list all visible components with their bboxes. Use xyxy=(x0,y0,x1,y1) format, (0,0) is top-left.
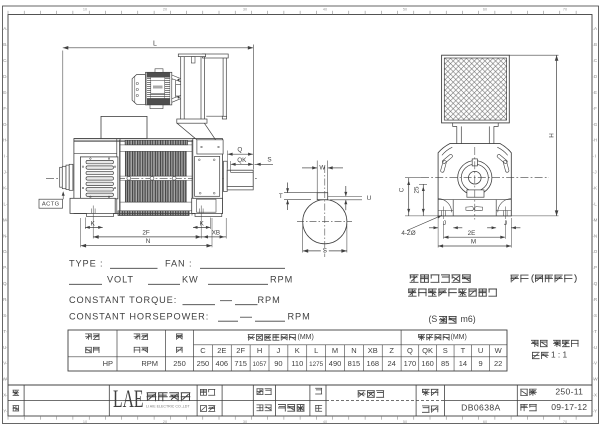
svg-text:L: L xyxy=(314,346,318,355)
svg-text:J: J xyxy=(594,170,596,175)
svg-text:168: 168 xyxy=(367,359,380,368)
svg-text:10: 10 xyxy=(83,8,87,12)
svg-text:RPM: RPM xyxy=(141,359,158,368)
svg-text:QK: QK xyxy=(237,157,247,164)
svg-text:TYPE :: TYPE : xyxy=(69,259,104,269)
svg-text:E: E xyxy=(3,90,6,95)
svg-text:F: F xyxy=(594,106,597,111)
svg-text:2F: 2F xyxy=(142,229,150,236)
svg-text:40: 40 xyxy=(323,8,327,12)
svg-text:X: X xyxy=(594,393,597,398)
svg-text:4-ZØ: 4-ZØ xyxy=(401,230,415,237)
svg-text:60: 60 xyxy=(483,8,487,12)
svg-text:B: B xyxy=(594,42,597,47)
svg-text:K: K xyxy=(295,346,300,355)
svg-text:O: O xyxy=(3,249,7,254)
svg-text:40: 40 xyxy=(323,420,327,424)
svg-text:LAE: LAE xyxy=(113,386,144,413)
svg-text:490: 490 xyxy=(329,359,342,368)
svg-text:250-11: 250-11 xyxy=(555,386,583,396)
svg-text:N: N xyxy=(351,346,356,355)
svg-text:M: M xyxy=(471,239,476,246)
svg-text:110: 110 xyxy=(291,359,303,368)
svg-text:(MM): (MM) xyxy=(451,334,467,341)
svg-text:N: N xyxy=(3,233,6,238)
svg-text:XB: XB xyxy=(212,229,220,236)
svg-text:60: 60 xyxy=(483,420,487,424)
svg-text:U: U xyxy=(478,346,483,355)
svg-text:CONSTANT TORQUE:: CONSTANT TORQUE: xyxy=(69,295,177,305)
svg-text:30: 30 xyxy=(243,420,247,424)
svg-text:K: K xyxy=(594,185,597,190)
svg-text:25: 25 xyxy=(413,186,420,194)
svg-text:KW: KW xyxy=(182,275,199,285)
svg-text:250: 250 xyxy=(173,359,186,368)
svg-text:RPM: RPM xyxy=(270,275,293,285)
svg-text:2E: 2E xyxy=(468,230,476,237)
svg-text:N: N xyxy=(146,238,151,245)
svg-text:T: T xyxy=(594,329,597,334)
svg-text:815: 815 xyxy=(348,359,361,368)
svg-text:250: 250 xyxy=(197,359,210,368)
svg-text:30: 30 xyxy=(243,8,247,12)
svg-text:70: 70 xyxy=(563,420,567,424)
svg-text:C: C xyxy=(398,187,405,192)
svg-text:20: 20 xyxy=(163,420,167,424)
svg-text:N: N xyxy=(594,233,597,238)
svg-text:CONSTANT HORSEPOWER:: CONSTANT HORSEPOWER: xyxy=(69,312,209,322)
svg-text:Z: Z xyxy=(389,346,394,355)
svg-text:715: 715 xyxy=(234,359,247,368)
svg-text:m6): m6) xyxy=(461,314,476,324)
svg-text:Q: Q xyxy=(3,281,7,286)
svg-text:HP: HP xyxy=(103,359,113,368)
svg-text:(MM): (MM) xyxy=(298,334,314,341)
svg-text:F: F xyxy=(3,106,6,111)
svg-text:1 : 1: 1 : 1 xyxy=(551,350,568,360)
svg-text:LI AIE ELECTRIC CO.,LDT: LI AIE ELECTRIC CO.,LDT xyxy=(146,404,190,408)
svg-text:Q: Q xyxy=(594,281,598,286)
svg-text:G: G xyxy=(594,122,598,127)
svg-text:B: B xyxy=(3,42,6,47)
svg-text:14: 14 xyxy=(459,359,467,368)
svg-text:W: W xyxy=(319,164,325,171)
svg-text:Q: Q xyxy=(237,147,242,154)
svg-text:170: 170 xyxy=(404,359,417,368)
svg-text:ACTG: ACTG xyxy=(42,202,60,208)
svg-text:2E: 2E xyxy=(217,346,226,355)
svg-text:M: M xyxy=(332,346,338,355)
svg-text:G: G xyxy=(3,122,7,127)
svg-text:(S: (S xyxy=(429,314,438,324)
svg-text:A: A xyxy=(594,26,597,31)
svg-text:P: P xyxy=(3,265,6,270)
svg-text:P: P xyxy=(594,265,597,270)
svg-text:1057: 1057 xyxy=(253,361,268,368)
svg-text:S: S xyxy=(267,156,271,163)
svg-text:J: J xyxy=(277,346,281,355)
svg-text:T: T xyxy=(461,346,466,355)
svg-text:XB: XB xyxy=(368,346,378,355)
svg-text:85: 85 xyxy=(441,359,449,368)
svg-text:U: U xyxy=(594,345,597,350)
svg-text:H: H xyxy=(3,138,6,143)
svg-text:9: 9 xyxy=(478,359,482,368)
svg-text:RPM: RPM xyxy=(288,312,311,322)
svg-text:I: I xyxy=(595,154,596,159)
svg-text:Q: Q xyxy=(407,346,413,355)
svg-text:S: S xyxy=(594,313,597,318)
svg-text:X: X xyxy=(3,393,6,398)
svg-text:22: 22 xyxy=(494,359,502,368)
svg-text:70: 70 xyxy=(563,8,567,12)
svg-text:10: 10 xyxy=(83,420,87,424)
svg-text:QK: QK xyxy=(422,346,433,355)
svg-text:S: S xyxy=(3,313,6,318)
svg-text:FAN :: FAN : xyxy=(165,259,192,269)
svg-text:50: 50 xyxy=(403,420,407,424)
svg-text:A: A xyxy=(3,26,6,31)
svg-text:T: T xyxy=(279,193,283,200)
svg-text:Y: Y xyxy=(594,409,597,414)
svg-text:H: H xyxy=(594,138,597,143)
svg-text:H: H xyxy=(549,133,556,138)
svg-text:H: H xyxy=(257,346,262,355)
svg-text:J: J xyxy=(4,170,6,175)
svg-text:RPM: RPM xyxy=(258,295,281,305)
svg-text:I: I xyxy=(4,154,5,159)
svg-text:E: E xyxy=(594,90,597,95)
svg-text:20: 20 xyxy=(163,8,167,12)
svg-text:U: U xyxy=(3,345,6,350)
svg-text:160: 160 xyxy=(421,359,434,368)
svg-text:09-17-12: 09-17-12 xyxy=(551,402,587,412)
svg-text:W: W xyxy=(495,346,503,355)
svg-text:50: 50 xyxy=(403,8,407,12)
svg-text:M: M xyxy=(3,217,7,222)
svg-text:W: W xyxy=(3,377,8,382)
svg-text:24: 24 xyxy=(387,359,395,368)
svg-text:S: S xyxy=(443,346,448,355)
svg-text:2F: 2F xyxy=(236,346,245,355)
svg-text:C: C xyxy=(200,346,206,355)
svg-text:L: L xyxy=(153,40,157,47)
svg-text:K: K xyxy=(3,185,6,190)
svg-text:V: V xyxy=(3,361,6,366)
svg-text:DB0638A: DB0638A xyxy=(461,402,501,412)
svg-text:T: T xyxy=(3,329,6,334)
svg-text:O: O xyxy=(594,249,598,254)
svg-text:406: 406 xyxy=(216,359,229,368)
svg-text:U: U xyxy=(367,195,372,202)
svg-text:VOLT: VOLT xyxy=(107,275,134,285)
svg-text:1275: 1275 xyxy=(309,361,324,368)
svg-text:V: V xyxy=(594,361,597,366)
svg-text:Y: Y xyxy=(3,409,6,414)
svg-text:90: 90 xyxy=(274,359,282,368)
svg-text:M: M xyxy=(594,217,598,222)
